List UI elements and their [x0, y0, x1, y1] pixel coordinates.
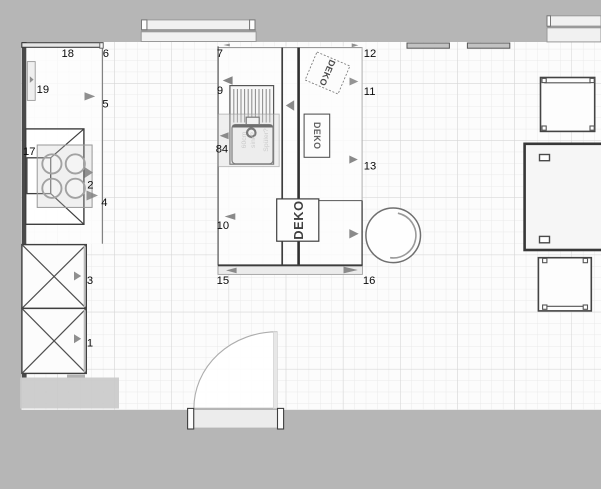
svg-text:13: 13	[364, 161, 376, 173]
svg-text:17: 17	[23, 146, 35, 158]
svg-text:2: 2	[87, 180, 93, 192]
svg-text:4: 4	[101, 197, 107, 209]
svg-text:DEKO: DEKO	[312, 122, 322, 149]
svg-text:12: 12	[364, 48, 376, 60]
svg-text:1: 1	[87, 337, 93, 349]
svg-text:16: 16	[363, 275, 375, 287]
svg-text:5: 5	[102, 98, 108, 110]
svg-text:7: 7	[217, 48, 223, 60]
svg-text:6: 6	[103, 48, 109, 60]
svg-text:3: 3	[87, 275, 93, 287]
svg-text:10: 10	[217, 220, 229, 232]
svg-text:15: 15	[217, 275, 229, 287]
svg-text:19: 19	[37, 84, 49, 96]
svg-text:DEKO: DEKO	[291, 200, 306, 239]
svg-text:11: 11	[364, 86, 376, 98]
svg-text:84: 84	[216, 143, 228, 155]
svg-text:18: 18	[62, 48, 74, 60]
svg-text:9: 9	[217, 85, 223, 97]
